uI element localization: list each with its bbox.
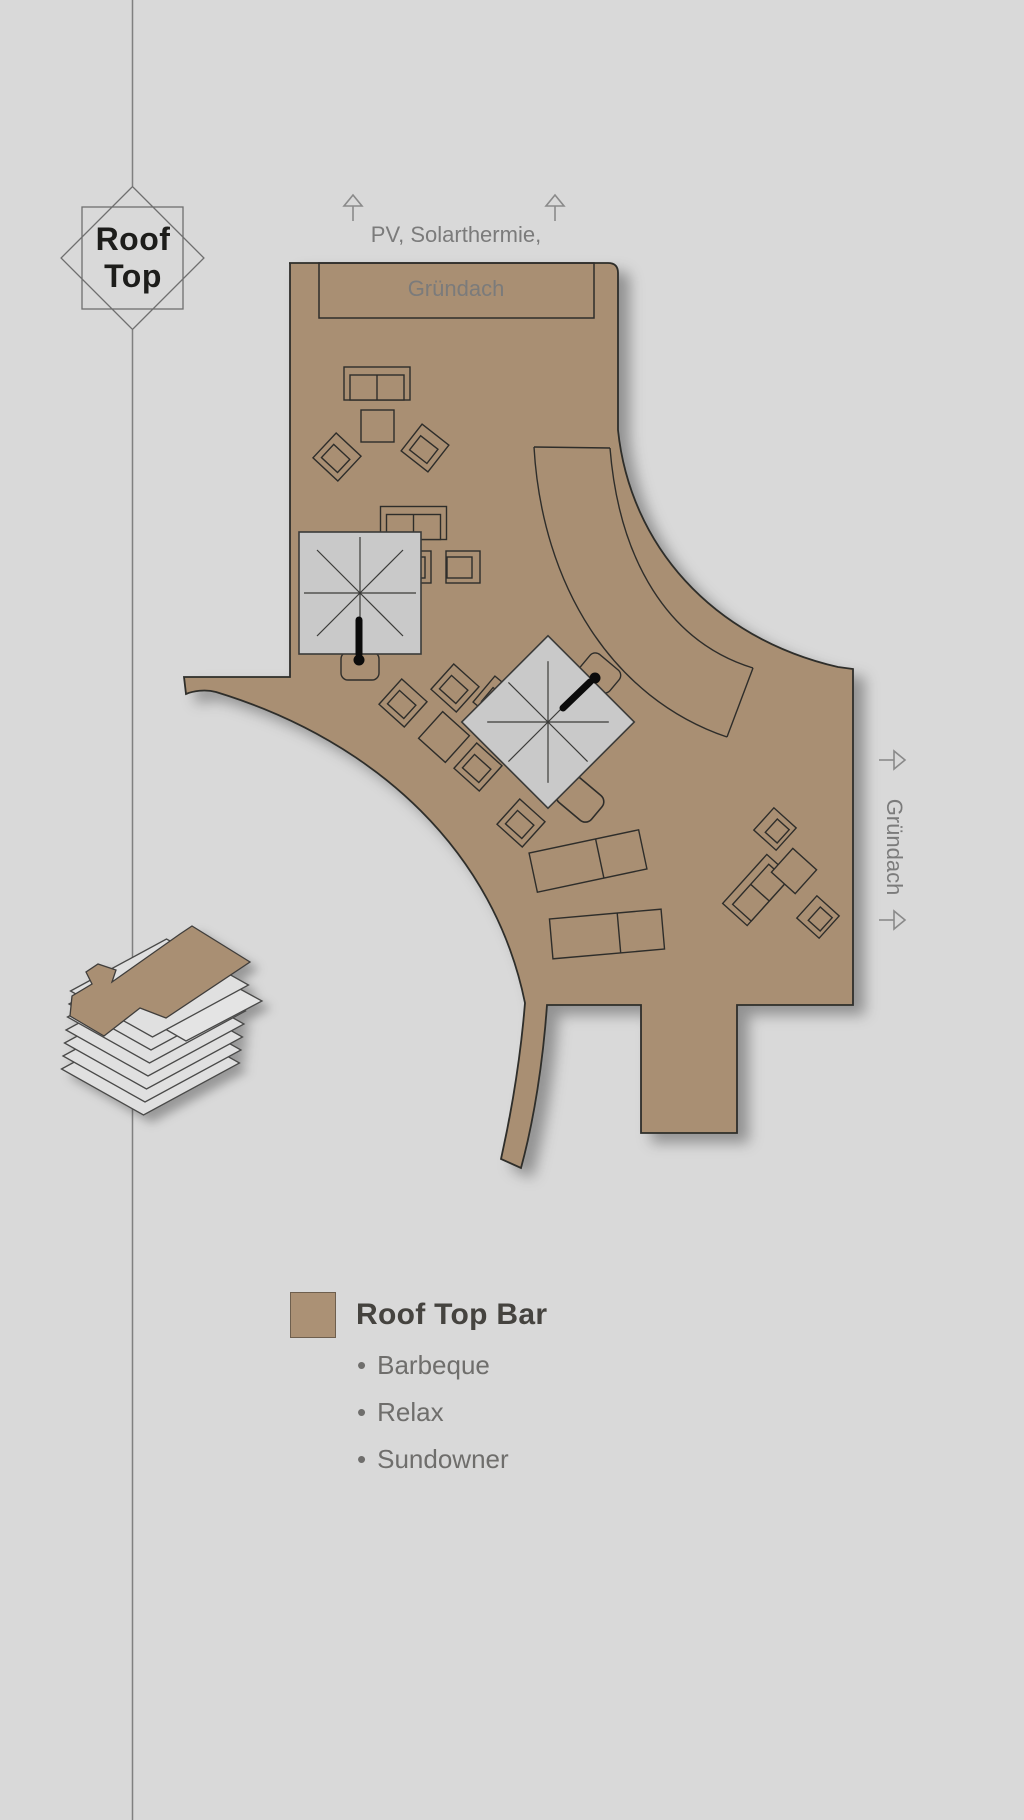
level-badge: Roof Top — [70, 221, 196, 295]
legend-item: •Sundowner — [357, 1444, 509, 1474]
parasol-1 — [299, 532, 421, 666]
coffee-table — [361, 410, 394, 442]
legend-item: •Relax — [357, 1397, 444, 1427]
legend-item-label: Barbeque — [377, 1350, 490, 1380]
caption-line1: PV, Solarthermie, — [371, 222, 541, 247]
level-badge-line1: Roof — [70, 221, 196, 258]
greenroof-caption: Gründach — [881, 792, 907, 902]
legend-item-label: Relax — [377, 1397, 443, 1427]
site-plan-page: { "badge": { "line1": "Roof", "line2": "… — [0, 0, 1024, 1820]
legend-item-label: Sundowner — [377, 1444, 509, 1474]
legend-item: •Barbeque — [357, 1350, 490, 1380]
right-arrow-icon — [877, 909, 907, 931]
legend-color-swatch — [290, 1292, 336, 1338]
up-arrow-icon — [544, 193, 566, 223]
right-arrow-icon — [877, 749, 907, 771]
roof-plan — [184, 263, 853, 1168]
level-badge-line2: Top — [70, 258, 196, 295]
building-levels-icon — [62, 926, 263, 1115]
bullet-icon: • — [357, 1350, 366, 1380]
bullet-icon: • — [357, 1397, 366, 1427]
parasol-base — [590, 673, 601, 684]
sofa — [344, 367, 410, 400]
parasol-base — [354, 655, 365, 666]
legend-title: Roof Top Bar — [356, 1298, 547, 1332]
roof-systems-caption: PV, Solarthermie, Gründach — [340, 194, 572, 302]
bullet-icon: • — [357, 1444, 366, 1474]
caption-line2: Gründach — [408, 276, 505, 301]
greenroof-caption-text: Gründach — [882, 799, 907, 896]
